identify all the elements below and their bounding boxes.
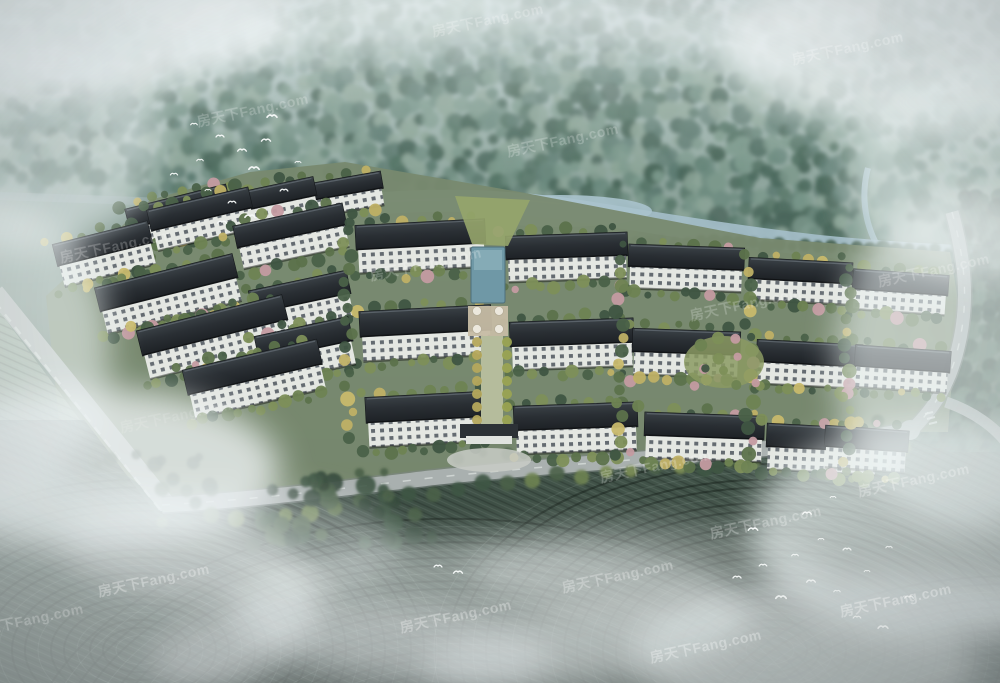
aerial-rendering: 房天下Fang.com房天下Fang.com房天下Fang.com房天下Fang… bbox=[0, 0, 1000, 683]
vignette bbox=[0, 0, 1000, 683]
scene-canvas bbox=[0, 0, 1000, 683]
